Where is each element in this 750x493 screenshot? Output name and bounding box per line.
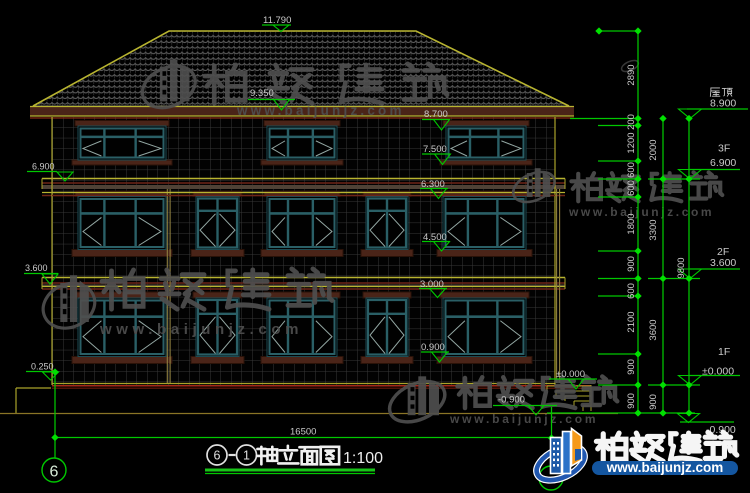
svg-text:600: 600 (626, 162, 637, 178)
svg-text:3.000: 3.000 (420, 279, 444, 290)
svg-text:11.790: 11.790 (263, 15, 291, 26)
svg-text:www.baijunjz.com: www.baijunjz.com (236, 103, 405, 118)
svg-text:200: 200 (626, 114, 637, 130)
svg-text:9.350: 9.350 (250, 88, 274, 99)
svg-text:6.900: 6.900 (32, 162, 55, 172)
svg-text:±0.000: ±0.000 (702, 366, 734, 378)
svg-text:www.baijunjz.com: www.baijunjz.com (99, 321, 303, 338)
svg-text:1:100: 1:100 (343, 450, 383, 467)
svg-text:www.baijunjz.com: www.baijunjz.com (449, 412, 598, 426)
svg-text:2100: 2100 (626, 311, 637, 332)
svg-text:2000: 2000 (648, 139, 659, 160)
svg-text:3.600: 3.600 (710, 257, 736, 269)
svg-text:1F: 1F (718, 346, 730, 358)
svg-text:1: 1 (243, 449, 250, 463)
svg-text:www.baijunjz.com: www.baijunjz.com (568, 205, 714, 219)
svg-text:900: 900 (626, 359, 637, 375)
svg-text:4.500: 4.500 (423, 232, 447, 243)
svg-text:6.900: 6.900 (710, 157, 736, 169)
svg-text:±0.000: ±0.000 (556, 369, 585, 380)
svg-text:1800: 1800 (626, 213, 637, 234)
svg-text:900: 900 (648, 394, 659, 410)
svg-text:900: 900 (626, 256, 637, 272)
svg-text:2890: 2890 (626, 64, 637, 85)
svg-text:1200: 1200 (626, 132, 637, 153)
svg-text:6: 6 (214, 449, 221, 463)
svg-text:8.700: 8.700 (424, 109, 448, 120)
svg-text:3.600: 3.600 (25, 263, 48, 273)
svg-text:16500: 16500 (290, 427, 316, 438)
svg-text:3300: 3300 (648, 219, 659, 240)
svg-text:8.900: 8.900 (710, 98, 736, 110)
svg-text:www.baijunjz.com: www.baijunjz.com (606, 460, 724, 475)
svg-text:0.900: 0.900 (421, 342, 445, 353)
svg-text:9800: 9800 (676, 257, 687, 278)
svg-text:0.250: 0.250 (31, 362, 54, 372)
svg-text:600: 600 (626, 180, 637, 196)
svg-text:6.300: 6.300 (421, 179, 445, 190)
svg-text:3F: 3F (718, 143, 730, 155)
svg-text:-0.900: -0.900 (498, 395, 525, 406)
svg-text:900: 900 (626, 393, 637, 409)
svg-text:6: 6 (50, 464, 59, 481)
svg-text:3600: 3600 (648, 319, 659, 340)
svg-text:600: 600 (626, 283, 637, 299)
svg-text:7.500: 7.500 (423, 144, 447, 155)
